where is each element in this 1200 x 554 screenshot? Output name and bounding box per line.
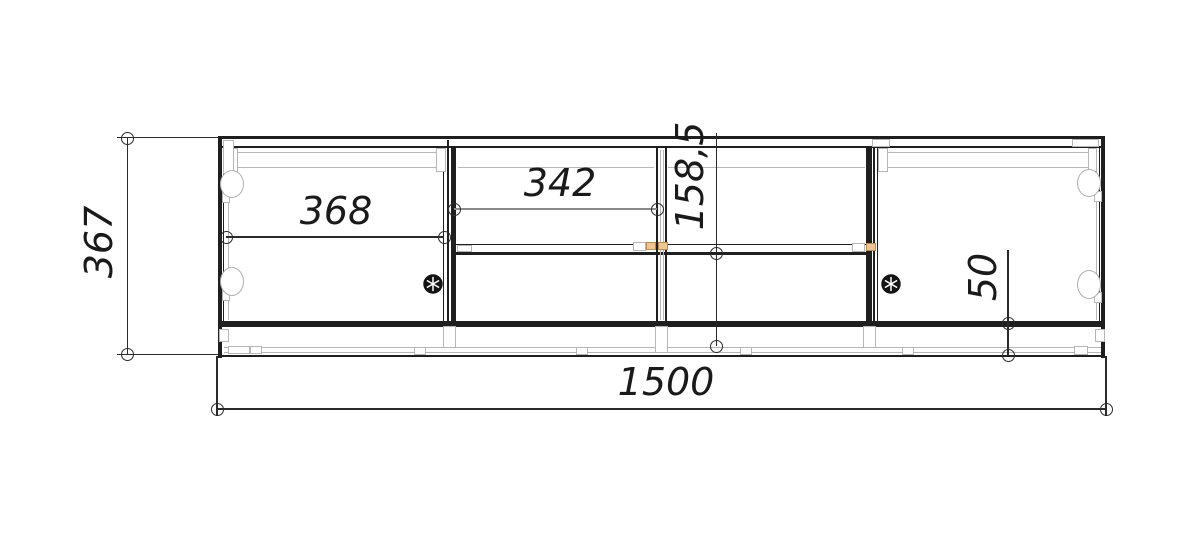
dimension-endpoint-circle (710, 340, 723, 353)
plinth-corner-connector-right (1095, 329, 1105, 342)
divider3-bottom-connector (863, 326, 876, 348)
plinth-connector-2 (414, 347, 426, 355)
right-door-top-bracket-1 (872, 139, 890, 147)
left-door-rail-bracket-right (436, 148, 446, 172)
left-door-rail-line-2 (230, 167, 445, 168)
right-door-rail-bracket-left (878, 148, 888, 172)
middle-divider-inner-line-2 (663, 150, 664, 320)
left-divider-panel (451, 147, 456, 321)
hinge-cup-icon (1077, 270, 1101, 299)
plinth-connector-4 (740, 347, 752, 355)
right-divider-panel (866, 147, 872, 321)
right-door-top-bracket-2 (1072, 139, 1099, 147)
hinge-cup-icon (220, 170, 244, 198)
right-door-left-edge (873, 140, 875, 321)
dimension-endpoint-circle (448, 203, 461, 216)
top-panel-edge (218, 136, 1105, 139)
dim-plinth-height-label: 50 (964, 253, 1002, 301)
dim-overall-height-label: 367 (80, 206, 118, 279)
plinth-connector-6 (1074, 346, 1088, 355)
dimension-endpoint-circle (438, 231, 451, 244)
plinth-bracket-left (228, 346, 250, 354)
dim-middle-opening-label: 342 (524, 164, 597, 202)
divider2-bottom-connector (655, 326, 668, 353)
plinth-corner-connector-left (219, 329, 229, 342)
shelf-connector-highlight-1 (646, 242, 656, 250)
hinge-cup-icon (1077, 169, 1101, 197)
dimension-endpoint-circle (1002, 317, 1015, 330)
hinge-cup-icon (220, 267, 244, 296)
dimension-endpoint-circle (121, 348, 134, 361)
middle-divider-inner-line-1 (660, 150, 661, 320)
dimension-endpoint-circle (710, 247, 723, 260)
wheel-knob-icon (423, 274, 443, 294)
shelf-right-bracket (852, 243, 865, 252)
left-door-top-hinge-plate (223, 140, 234, 174)
dim-1500-line (217, 408, 1106, 409)
dimension-endpoint-circle (220, 231, 233, 244)
top-panel-inner-line (218, 146, 1105, 148)
plinth-bottom-edge (218, 355, 1105, 357)
plinth-connector-5 (902, 347, 914, 355)
cabinet-drawing-canvas: 367 1500 368 342 158,5 50 (0, 0, 1200, 554)
plinth-connector-1 (250, 346, 262, 354)
dim-342-line (454, 208, 657, 210)
plinth-connector-3 (576, 347, 588, 355)
right-door-rail-line-2 (878, 167, 1096, 168)
middle-divider-left-face (656, 147, 659, 321)
dim-left-section-label: 368 (300, 192, 373, 230)
shelf-connector-highlight-3 (866, 243, 876, 251)
left-door-rail-line-1 (230, 152, 445, 153)
left-door-right-gap-line (447, 140, 449, 321)
dim-158-line (716, 133, 717, 346)
dimension-endpoint-circle (121, 132, 134, 145)
dim-50-line (1007, 250, 1008, 356)
dim-367-line (127, 138, 128, 354)
shelf-connector-highlight-2 (658, 242, 668, 250)
dimension-endpoint-circle (651, 203, 664, 216)
shelf-left-bracket (457, 245, 472, 252)
shelf-middle-bracket (633, 242, 646, 251)
right-door-rail-line-1 (878, 152, 1096, 153)
dimension-endpoint-circle (1002, 349, 1015, 362)
wheel-knob-icon (881, 274, 901, 294)
divider1-bottom-connector (443, 326, 456, 348)
middle-divider-right-face (665, 147, 668, 321)
shelf-bottom-edge (456, 252, 866, 256)
right-door-left-gap-line (877, 147, 878, 321)
dim-368-line (226, 236, 444, 237)
dim-lower-opening-label: 158,5 (671, 122, 709, 231)
dimension-endpoint-circle (1100, 403, 1113, 416)
dim-overall-width-label: 1500 (618, 363, 715, 401)
dimension-endpoint-circle (211, 403, 224, 416)
